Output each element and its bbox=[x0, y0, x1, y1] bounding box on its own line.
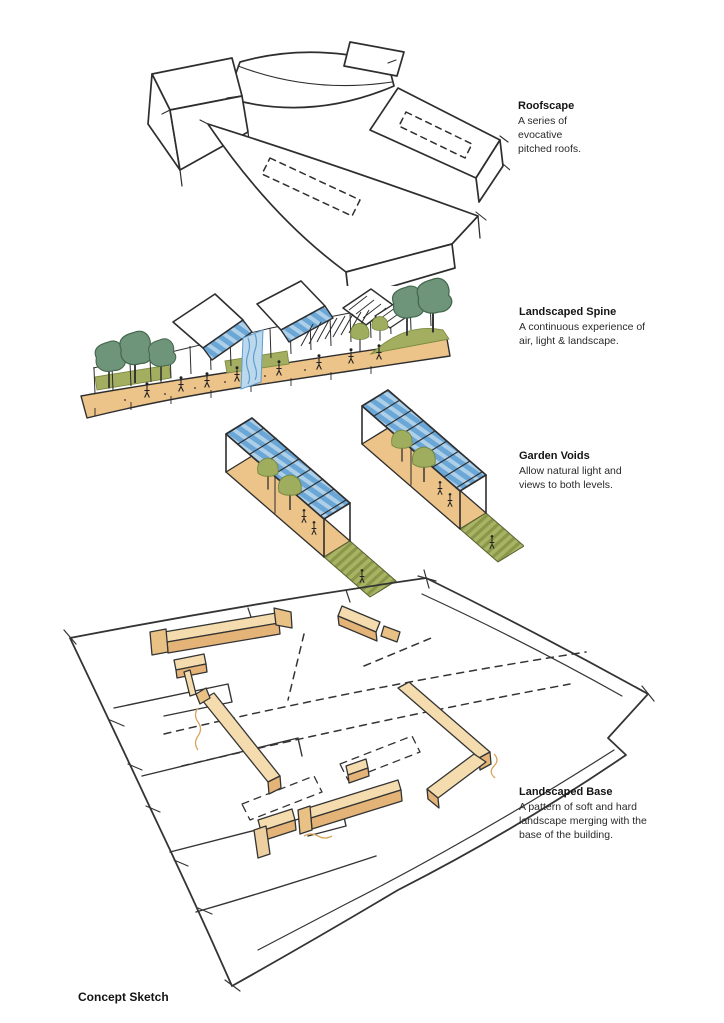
annotation-garden-voids: Garden Voids Allow natural light and vie… bbox=[519, 449, 639, 492]
roof-left-block bbox=[148, 58, 250, 186]
roofscape-sketch bbox=[120, 36, 510, 286]
annotation-description: Allow natural light and views to both le… bbox=[519, 464, 639, 492]
concept-sketch-page: Roofscape A series of evocative pitched … bbox=[0, 0, 724, 1023]
site-inner-lines bbox=[258, 594, 622, 950]
annotation-description: A series of evocative pitched roofs. bbox=[518, 114, 590, 156]
annotation-description: A continuous experience of air, light & … bbox=[519, 320, 647, 348]
drawing-caption: Concept Sketch bbox=[78, 990, 169, 1004]
annotation-title: Landscaped Spine bbox=[519, 305, 647, 319]
void-box-2 bbox=[362, 390, 524, 562]
annotation-roofscape: Roofscape A series of evocative pitched … bbox=[518, 99, 600, 156]
annotation-title: Garden Voids bbox=[519, 449, 639, 463]
annotation-description: A pattern of soft and hard landscape mer… bbox=[519, 800, 649, 842]
landscaped-base-sketch bbox=[46, 568, 666, 998]
annotation-title: Roofscape bbox=[518, 99, 600, 113]
site-terraces bbox=[114, 684, 376, 912]
annotation-title: Landscaped Base bbox=[519, 785, 649, 799]
annotation-landscaped-base: Landscaped Base A pattern of soft and ha… bbox=[519, 785, 649, 842]
spine-water-strip bbox=[241, 330, 263, 389]
annotation-landscaped-spine: Landscaped Spine A continuous experience… bbox=[519, 305, 647, 348]
base-walls bbox=[150, 606, 491, 858]
